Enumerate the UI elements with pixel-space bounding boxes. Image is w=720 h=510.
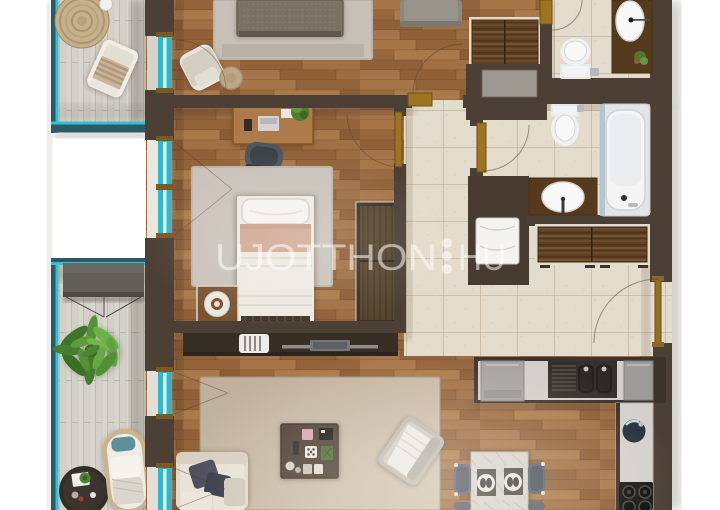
svg-text:HU: HU [458, 237, 506, 278]
svg-text:UJOTTHON: UJOTTHON [215, 237, 437, 278]
